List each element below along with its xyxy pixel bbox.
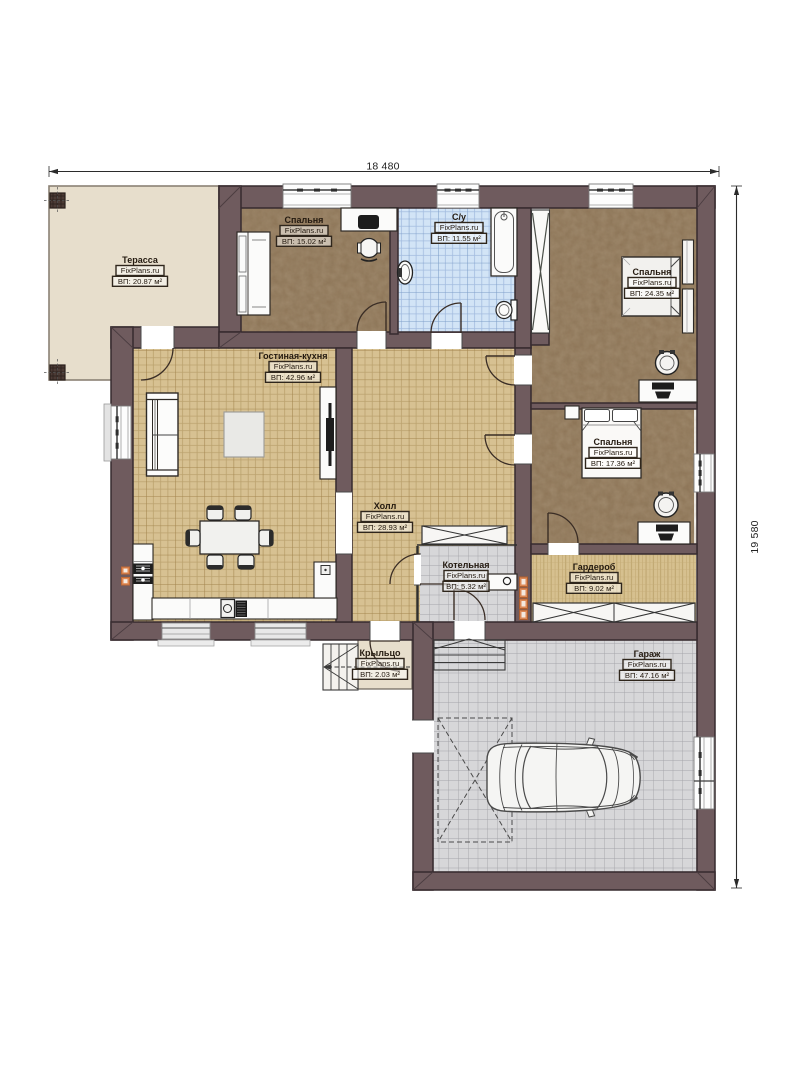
svg-text:ВП: 28.93 м²: ВП: 28.93 м² bbox=[363, 523, 408, 532]
svg-text:С/у: С/у bbox=[452, 212, 466, 222]
svg-text:FixPlans.ru: FixPlans.ru bbox=[575, 573, 613, 582]
svg-text:FixPlans.ru: FixPlans.ru bbox=[274, 362, 312, 371]
svg-text:Гараж: Гараж bbox=[634, 649, 661, 659]
svg-text:19 580: 19 580 bbox=[749, 520, 761, 553]
svg-text:Гардероб: Гардероб bbox=[573, 562, 616, 572]
svg-text:FixPlans.ru: FixPlans.ru bbox=[440, 223, 478, 232]
svg-text:Крыльцо: Крыльцо bbox=[360, 648, 401, 658]
svg-text:ВП: 2.03 м²: ВП: 2.03 м² bbox=[360, 670, 400, 679]
svg-text:FixPlans.ru: FixPlans.ru bbox=[366, 512, 404, 521]
svg-text:FixPlans.ru: FixPlans.ru bbox=[285, 226, 323, 235]
svg-text:FixPlans.ru: FixPlans.ru bbox=[594, 448, 632, 457]
svg-text:ВП: 47.16 м²: ВП: 47.16 м² bbox=[625, 671, 670, 680]
svg-text:Гостиная-кухня: Гостиная-кухня bbox=[259, 351, 328, 361]
svg-text:Терасса: Терасса bbox=[122, 255, 159, 265]
svg-text:18 480: 18 480 bbox=[366, 161, 399, 173]
svg-text:ВП: 20.87 м²: ВП: 20.87 м² bbox=[118, 277, 163, 286]
svg-text:FixPlans.ru: FixPlans.ru bbox=[361, 659, 399, 668]
svg-text:Котельная: Котельная bbox=[442, 560, 489, 570]
svg-text:ВП: 15.02 м²: ВП: 15.02 м² bbox=[282, 237, 327, 246]
svg-text:FixPlans.ru: FixPlans.ru bbox=[628, 660, 666, 669]
svg-text:ВП: 5.32 м²: ВП: 5.32 м² bbox=[446, 582, 486, 591]
svg-text:Спальня: Спальня bbox=[594, 437, 633, 447]
svg-text:ВП: 17.36 м²: ВП: 17.36 м² bbox=[591, 459, 636, 468]
svg-text:ВП: 42.96 м²: ВП: 42.96 м² bbox=[271, 373, 316, 382]
svg-text:ВП: 11.55 м²: ВП: 11.55 м² bbox=[437, 234, 481, 243]
svg-text:FixPlans.ru: FixPlans.ru bbox=[633, 278, 671, 287]
svg-text:FixPlans.ru: FixPlans.ru bbox=[121, 266, 159, 275]
svg-text:Спальня: Спальня bbox=[285, 215, 324, 225]
svg-text:Холл: Холл bbox=[374, 501, 397, 511]
svg-text:FixPlans.ru: FixPlans.ru bbox=[447, 571, 485, 580]
svg-text:Спальня: Спальня bbox=[633, 267, 672, 277]
svg-text:ВП: 24.35 м²: ВП: 24.35 м² bbox=[630, 289, 675, 298]
svg-text:ВП: 9.02 м²: ВП: 9.02 м² bbox=[574, 584, 614, 593]
